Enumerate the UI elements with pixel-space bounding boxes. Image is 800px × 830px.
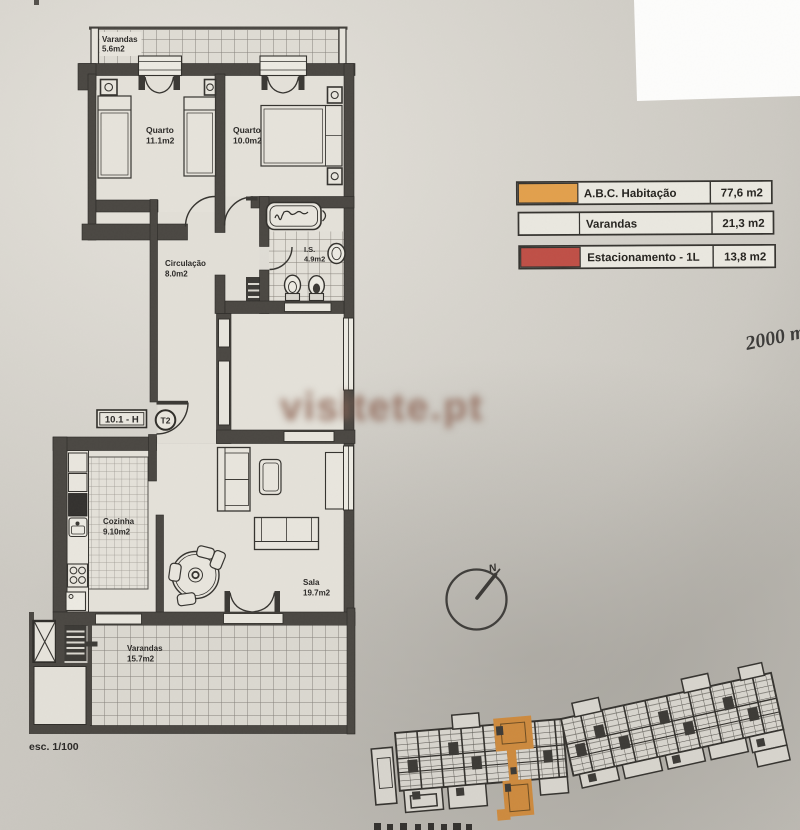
svg-text:A.B.C. Habitação: A.B.C. Habitação <box>584 188 677 200</box>
svg-text:77,6 m2: 77,6 m2 <box>721 187 763 199</box>
svg-text:N: N <box>488 562 499 576</box>
svg-text:Quarto: Quarto <box>233 125 261 135</box>
svg-text:10.1 - H: 10.1 - H <box>105 414 139 425</box>
svg-text:Varandas: Varandas <box>586 219 637 231</box>
svg-text:2000 m: 2000 m <box>742 321 800 355</box>
svg-text:21,3 m2: 21,3 m2 <box>722 218 764 230</box>
svg-text:11.1m2: 11.1m2 <box>146 136 175 146</box>
svg-text:15.7m2: 15.7m2 <box>127 655 155 664</box>
svg-text:Sala: Sala <box>303 578 320 587</box>
svg-text:esc. 1/100: esc. 1/100 <box>29 741 79 753</box>
svg-text:10.0m2: 10.0m2 <box>233 136 262 146</box>
svg-text:19.7m2: 19.7m2 <box>303 589 331 598</box>
svg-text:5.6m2: 5.6m2 <box>102 45 125 54</box>
svg-text:Varandas: Varandas <box>102 35 138 44</box>
svg-text:T2: T2 <box>161 416 171 426</box>
svg-text:Varandas: Varandas <box>127 644 163 653</box>
svg-text:Circulação: Circulação <box>165 259 206 268</box>
svg-text:Cozinha: Cozinha <box>103 517 135 526</box>
svg-text:9.10m2: 9.10m2 <box>103 528 131 537</box>
svg-text:Estacionamento - 1L: Estacionamento - 1L <box>587 252 700 265</box>
svg-text:13,8 m2: 13,8 m2 <box>724 251 766 263</box>
svg-text:8.0m2: 8.0m2 <box>165 270 188 279</box>
svg-text:4.9m2: 4.9m2 <box>304 255 325 264</box>
svg-text:Quarto: Quarto <box>146 125 174 135</box>
svg-text:I.S.: I.S. <box>304 245 315 254</box>
